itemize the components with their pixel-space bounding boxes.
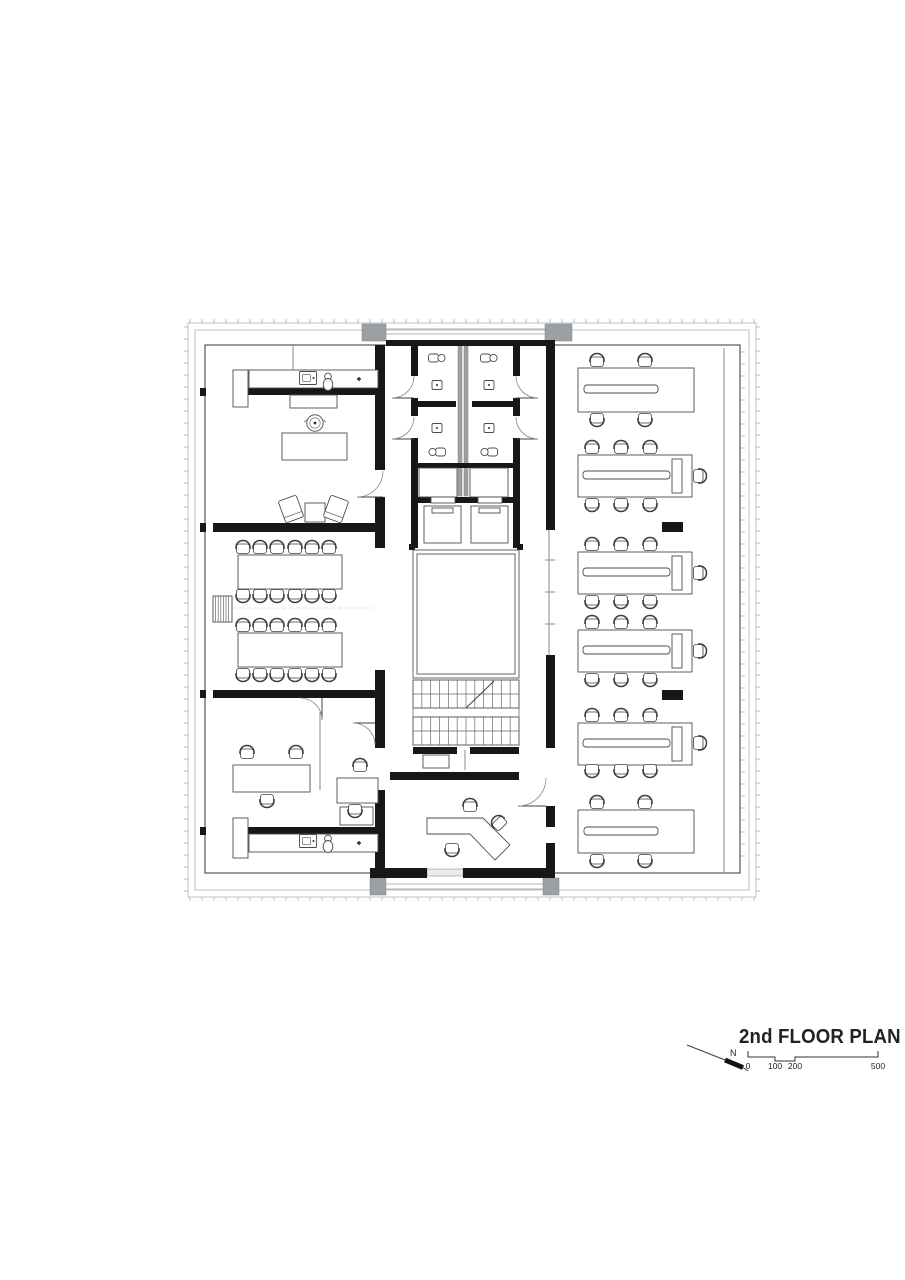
north-label: N [730,1048,737,1058]
scale-bar: 0100200500 [746,1051,886,1071]
chair-icon [235,590,251,603]
basin-icon [432,381,442,390]
chair-icon [642,765,658,778]
chair-icon [613,709,629,722]
scale-label: 500 [871,1061,885,1071]
floor-plan-drawing: N0100200500 [0,0,905,1280]
basin-icon [484,381,494,390]
chair-icon [637,414,653,427]
chair-icon [235,541,251,554]
chair-icon [288,746,304,759]
chair-icon [584,441,600,454]
chair-icon [642,538,658,551]
chair-icon [252,619,268,632]
lounge-chair-icon [278,495,304,523]
scale-label: 100 [768,1061,782,1071]
chair-icon [287,590,303,603]
chair-icon [321,669,337,682]
basin-icon [484,424,494,433]
chair-icon [613,499,629,512]
chair-icon [252,590,268,603]
chair-icon [287,541,303,554]
chair-icon [584,709,600,722]
chair-icon [252,541,268,554]
scale-label: 0 [746,1061,751,1071]
chair-icon [269,541,285,554]
chair-icon [642,709,658,722]
atrium-void [413,550,519,678]
chair-icon [637,796,653,809]
chair-icon [259,795,275,808]
lounge-chair-icon [323,495,349,523]
chair-icon [584,765,600,778]
chair-icon [321,590,337,603]
toilet-icon [429,354,446,362]
chair-icon [694,643,707,659]
chair-icon [694,565,707,581]
chair-icon [613,674,629,687]
chair-icon [269,669,285,682]
plant-icon [304,415,326,431]
staircase [413,680,519,745]
chair-icon [642,499,658,512]
toilet-icon [481,448,498,456]
toilet-icon [481,354,498,362]
chair-icon [584,499,600,512]
chair-icon [321,619,337,632]
chair-icon [694,468,707,484]
chair-icon [584,674,600,687]
chair-icon [642,441,658,454]
scale-label: 200 [788,1061,802,1071]
chair-icon [252,669,268,682]
chair-icon [304,619,320,632]
chair-icon [613,765,629,778]
chair-icon [613,441,629,454]
sink-icon [300,372,317,385]
chair-icon [642,674,658,687]
chair-icon [642,616,658,629]
floor-plan-sheet: N0100200500 2nd FLOOR PLAN [0,0,905,1280]
chair-icon [304,541,320,554]
chair-icon [269,619,285,632]
chair-icon [287,669,303,682]
chair-icon [642,596,658,609]
toilet-icon [323,373,333,390]
chair-icon [613,596,629,609]
chair-icon [239,746,255,759]
basin-icon [432,424,442,433]
chair-icon [637,855,653,868]
chair-icon [269,590,285,603]
chair-icon [584,538,600,551]
chair-icon [589,855,605,868]
chair-icon [304,669,320,682]
chair-icon [589,354,605,367]
chair-icon [352,759,368,772]
chair-icon [235,669,251,682]
toilet-icon [323,835,333,852]
chair-icon [287,619,303,632]
chair-icon [235,619,251,632]
chair-icon [584,616,600,629]
chair-icon [589,414,605,427]
chair-icon [444,844,460,857]
title-block: 2nd FLOOR PLAN [739,1026,905,1050]
chair-icon [637,354,653,367]
plan-title: 2nd FLOOR PLAN [739,1026,897,1049]
chair-icon [304,590,320,603]
toilet-icon [429,448,446,456]
chair-icon [321,541,337,554]
chair-icon [584,596,600,609]
chair-icon [462,799,478,812]
chair-icon [613,616,629,629]
chair-icon [589,796,605,809]
chair-icon [694,735,707,751]
sink-icon [300,835,317,848]
chair-icon [613,538,629,551]
